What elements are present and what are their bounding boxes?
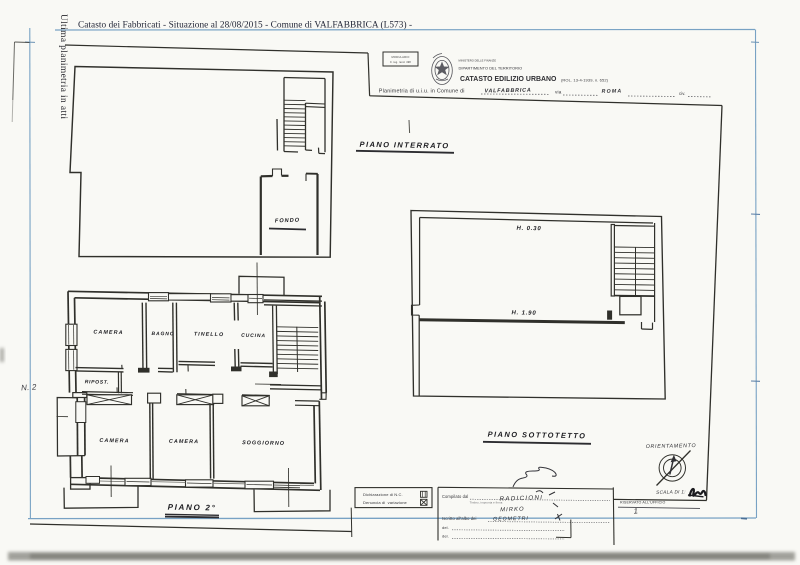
- svg-text:PIANO INTERRATO: PIANO INTERRATO: [360, 140, 450, 151]
- svg-text:FONDO: FONDO: [275, 218, 300, 225]
- svg-text:Planimetria di u.i.u. in Comun: Planimetria di u.i.u. in Comune di: [379, 89, 465, 95]
- svg-text:CATASTO EDILIZIO URBANO: CATASTO EDILIZIO URBANO: [460, 76, 557, 83]
- svg-text:via: via: [555, 90, 562, 95]
- svg-text:MODULARIO: MODULARIO: [391, 55, 409, 59]
- svg-text:TINELLO: TINELLO: [194, 332, 224, 339]
- svg-text:del.: del.: [442, 534, 449, 539]
- svg-text:RISERVATO ALL'UFFICIO: RISERVATO ALL'UFFICIO: [620, 501, 666, 505]
- svg-text:PIANO SOTTOTETTO: PIANO SOTTOTETTO: [488, 430, 587, 441]
- svg-text:F. reg. rend. 498: F. reg. rend. 498: [390, 60, 411, 64]
- svg-text:N. 2: N. 2: [21, 382, 37, 392]
- svg-text:SOGGIORNO: SOGGIORNO: [242, 440, 285, 447]
- svg-text:BAGNO: BAGNO: [151, 331, 174, 337]
- svg-text:civ.: civ.: [679, 91, 686, 96]
- svg-text:ROMA: ROMA: [602, 88, 623, 94]
- svg-text:RIPOST.: RIPOST.: [85, 379, 110, 385]
- svg-text:Ultima planimetria in atti: Ultima planimetria in atti: [58, 14, 68, 119]
- svg-text:CUCINA: CUCINA: [241, 333, 266, 339]
- svg-text:SCALA DI 1:: SCALA DI 1:: [656, 489, 686, 495]
- svg-text:CAMERA: CAMERA: [169, 439, 199, 446]
- svg-text:VALFABBRICA: VALFABBRICA: [484, 88, 531, 95]
- svg-text:Denuncia di variazione: Denuncia di variazione: [363, 500, 408, 505]
- svg-text:MIRKO: MIRKO: [500, 507, 525, 514]
- svg-text:H. 1.90: H. 1.90: [511, 310, 536, 316]
- svg-text:Catasto dei Fabbricati - Situa: Catasto dei Fabbricati - Situazione al 2…: [78, 19, 412, 30]
- svg-text:ORIENTAMENTO: ORIENTAMENTO: [646, 443, 697, 450]
- svg-text:(ROL. 13-4-1939, n. 652): (ROL. 13-4-1939, n. 652): [561, 78, 609, 83]
- svg-text:PIANO 2°: PIANO 2°: [168, 503, 217, 513]
- svg-text:MINISTERO DELLE FINANZE: MINISTERO DELLE FINANZE: [459, 59, 497, 63]
- svg-text:Timbro, impronta e firma: Timbro, impronta e firma: [470, 500, 503, 504]
- svg-text:CAMERA: CAMERA: [99, 438, 129, 445]
- svg-text:Compilato dal: Compilato dal: [442, 494, 468, 499]
- svg-text:CAMERA: CAMERA: [93, 330, 123, 337]
- svg-text:1: 1: [633, 506, 638, 515]
- svg-text:H. 0.30: H. 0.30: [516, 226, 541, 232]
- svg-text:DIPARTIMENTO DEL TERRITORIO: DIPARTIMENTO DEL TERRITORIO: [459, 65, 523, 70]
- svg-text:Dichiarazione di N.C.: Dichiarazione di N.C.: [363, 492, 403, 497]
- svg-text:del.: del.: [442, 525, 449, 530]
- svg-text:Iscritto all'albo dei: Iscritto all'albo dei: [442, 516, 477, 521]
